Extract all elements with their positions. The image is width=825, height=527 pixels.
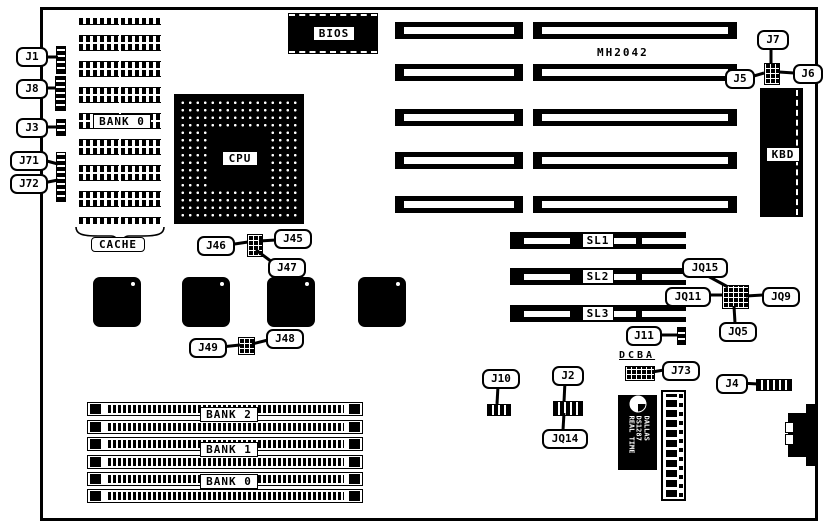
callout-j73: J73 — [662, 361, 700, 381]
callout-j71: J71 — [10, 151, 48, 171]
simm-bank1-label: BANK 1 — [200, 442, 258, 457]
simm-bank2-label: BANK 2 — [200, 407, 258, 422]
simm-bank0-label: BANK 0 — [200, 474, 258, 489]
callout-j4: J4 — [716, 374, 748, 394]
callout-j10: J10 — [482, 369, 520, 389]
callout-j45: J45 — [274, 229, 312, 249]
callout-j49: J49 — [189, 338, 227, 358]
kbd-label: KBD — [766, 147, 800, 162]
sl2-label: SL2 — [582, 269, 614, 284]
cache-bank0-label: BANK 0 — [93, 114, 151, 129]
callout-j11: J11 — [626, 326, 662, 346]
callout-j46: J46 — [197, 236, 235, 256]
callout-j6: J6 — [793, 64, 823, 84]
callout-jq14: JQ14 — [542, 429, 588, 449]
callout-jq11: JQ11 — [665, 287, 711, 307]
callout-j2: J2 — [552, 366, 584, 386]
callout-jq15: JQ15 — [682, 258, 728, 278]
sl1-label: SL1 — [582, 233, 614, 248]
callout-j3: J3 — [16, 118, 48, 138]
callout-j72: J72 — [10, 174, 48, 194]
callout-j8: J8 — [16, 79, 48, 99]
callout-jq9: JQ9 — [762, 287, 800, 307]
sl3-label: SL3 — [582, 306, 614, 321]
callout-j48: J48 — [266, 329, 304, 349]
motherboard-diagram: MH2042 BANK 0 CACHE CPU BIOS — [0, 0, 825, 527]
callout-j1: J1 — [16, 47, 48, 67]
callout-jq5: JQ5 — [719, 322, 757, 342]
cpu-label: CPU — [222, 151, 258, 166]
callout-j5: J5 — [725, 69, 755, 89]
cache-label: CACHE — [91, 237, 145, 252]
callout-j47: J47 — [268, 258, 306, 278]
bios-label: BIOS — [313, 26, 355, 41]
callout-j7: J7 — [757, 30, 789, 50]
